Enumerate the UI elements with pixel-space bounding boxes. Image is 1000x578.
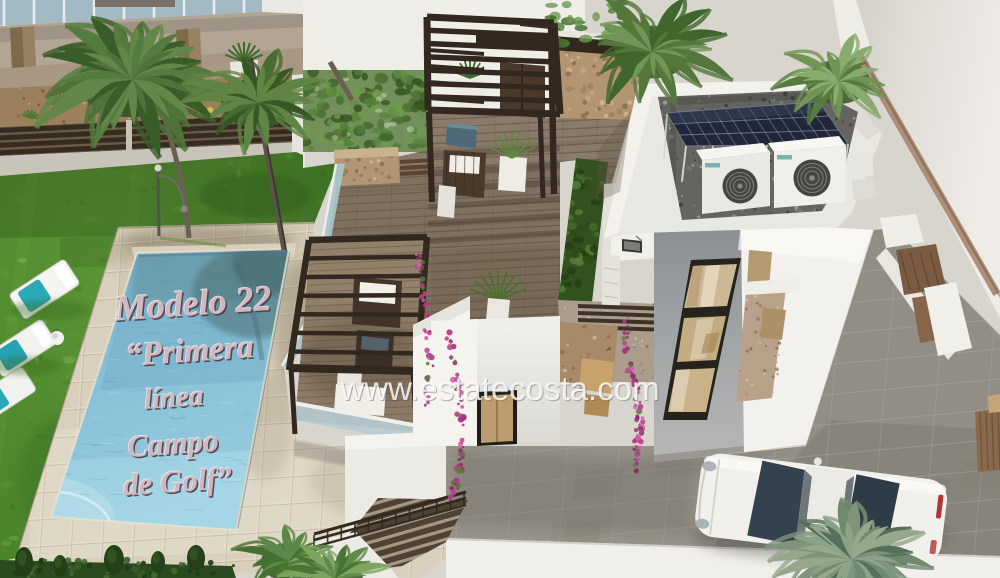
svg-text:Campo: Campo bbox=[126, 423, 220, 464]
svg-text:www.estatecosta.com: www.estatecosta.com bbox=[339, 370, 659, 407]
svg-text:línea: línea bbox=[143, 380, 205, 416]
